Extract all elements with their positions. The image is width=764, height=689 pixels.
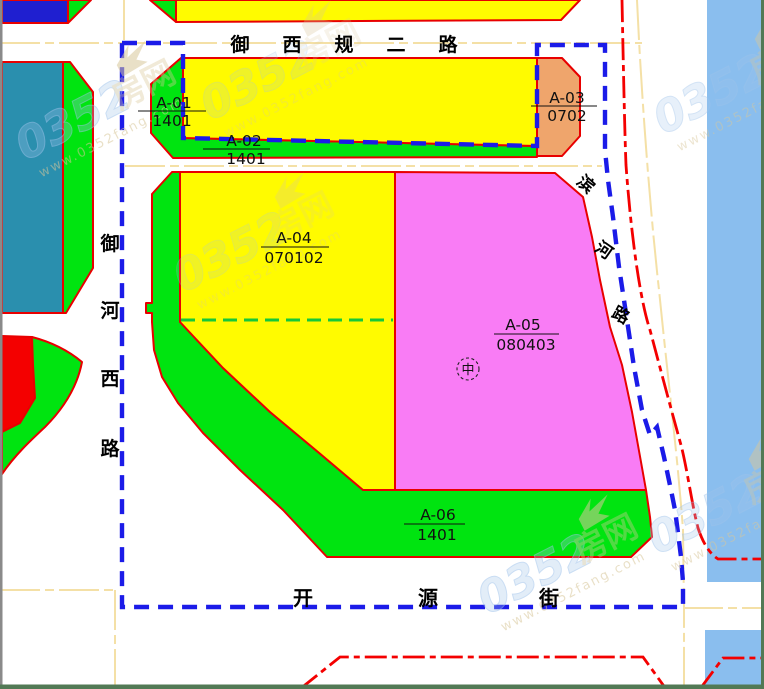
road-char: 西 — [282, 34, 301, 56]
road-char: 御 — [99, 232, 119, 255]
road-char: 路 — [608, 302, 634, 329]
road-char: 街 — [538, 586, 559, 610]
parcel-code: 1401 — [152, 112, 191, 130]
parcel-teal-west — [2, 62, 63, 313]
parcel-id: A-03 — [549, 89, 585, 107]
road-char: 二 — [386, 34, 405, 56]
parcel-id: A-01 — [156, 94, 192, 112]
road-char: 开 — [293, 586, 313, 610]
planning-map-canvas: 0352 房网 www.0352fang.com 0352 房网 www.035… — [0, 0, 764, 689]
marker-symbol: 中 — [461, 363, 474, 378]
parcel-id: A-06 — [420, 506, 456, 524]
parcel-code: 080403 — [496, 336, 555, 354]
parcel-darkblue-northwest — [2, 0, 68, 23]
parcel-code: 1401 — [226, 150, 265, 168]
south-road-redline-left — [300, 657, 666, 689]
parcel-green-wedge-northwest — [68, 0, 91, 23]
road-label-west: 御 河 西 路 — [99, 232, 120, 460]
parcel-id: A-05 — [505, 316, 541, 334]
road-char: 西 — [100, 368, 119, 390]
road-char: 规 — [334, 33, 353, 56]
parcel-yellow-north — [176, 0, 580, 22]
parcel-id: A-02 — [226, 132, 262, 150]
planning-map: 0352 房网 www.0352fang.com 0352 房网 www.035… — [0, 0, 764, 689]
parcel-code: 1401 — [417, 526, 456, 544]
parcel-code: 070102 — [264, 249, 323, 267]
road-char: 河 — [100, 300, 119, 322]
road-char: 路 — [438, 33, 458, 56]
parcel-code: 0702 — [547, 107, 586, 125]
parcel-id: A-04 — [276, 229, 312, 247]
road-char: 源 — [418, 586, 438, 610]
road-char: 御 — [229, 33, 249, 56]
parcel-green-wedge-north — [150, 0, 176, 22]
river-lower — [705, 630, 761, 689]
road-char: 路 — [100, 437, 120, 460]
frame-left — [0, 0, 3, 689]
frame-bottom — [0, 685, 764, 689]
